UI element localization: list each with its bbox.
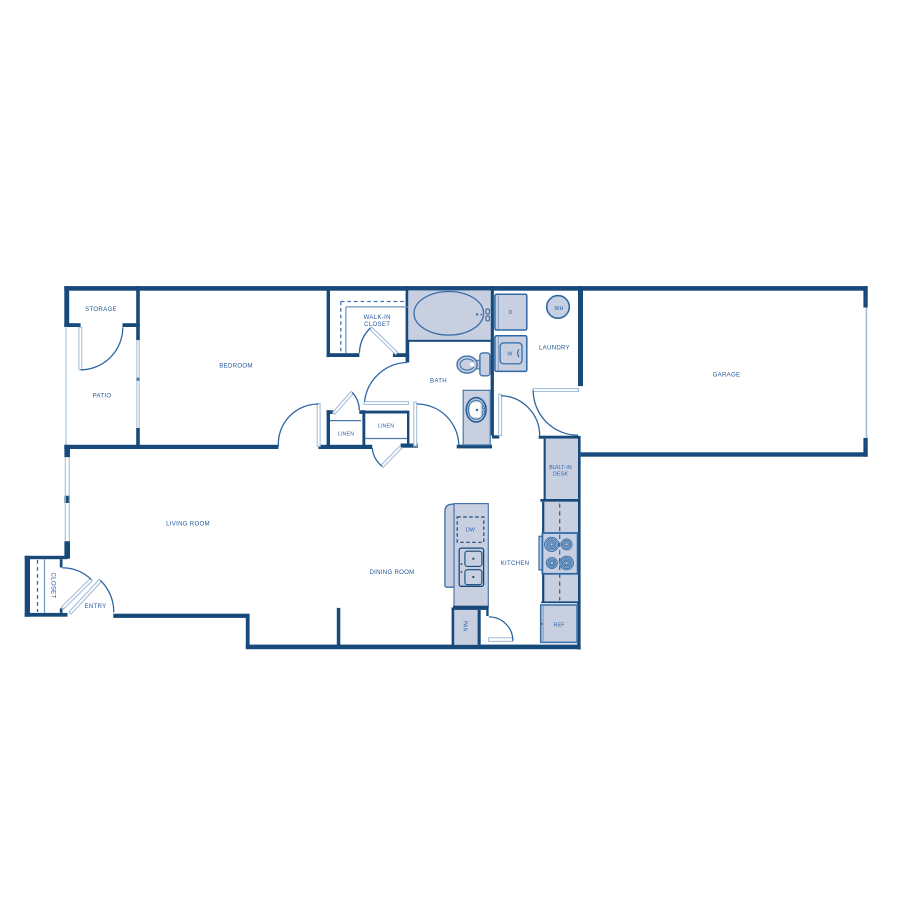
svg-text:LINEN: LINEN	[338, 432, 354, 438]
svg-text:STORAGE: STORAGE	[85, 306, 117, 313]
svg-text:BATH: BATH	[430, 378, 447, 385]
svg-text:KITCHEN: KITCHEN	[501, 560, 530, 567]
svg-text:PATIO: PATIO	[93, 393, 112, 400]
svg-text:LIVING ROOM: LIVING ROOM	[166, 521, 210, 528]
svg-text:REF: REF	[553, 622, 565, 628]
svg-text:LINEN: LINEN	[378, 424, 394, 430]
svg-text:BUILT-IN: BUILT-IN	[549, 465, 572, 471]
svg-text:DW: DW	[466, 528, 475, 534]
svg-text:CLOSET: CLOSET	[364, 321, 390, 328]
svg-text:BEDROOM: BEDROOM	[219, 363, 252, 370]
svg-text:WH: WH	[554, 306, 563, 312]
svg-text:LAUNDRY: LAUNDRY	[539, 345, 570, 352]
svg-text:DESK: DESK	[553, 472, 568, 478]
svg-text:CLOSET: CLOSET	[50, 572, 57, 598]
svg-text:W: W	[507, 352, 512, 358]
svg-text:PAN: PAN	[461, 621, 467, 632]
svg-text:WALK-IN: WALK-IN	[364, 314, 391, 321]
svg-text:ENTRY: ENTRY	[85, 603, 107, 610]
svg-text:GARAGE: GARAGE	[713, 372, 741, 379]
svg-text:DINING ROOM: DINING ROOM	[369, 569, 414, 576]
svg-text:D: D	[509, 310, 513, 316]
